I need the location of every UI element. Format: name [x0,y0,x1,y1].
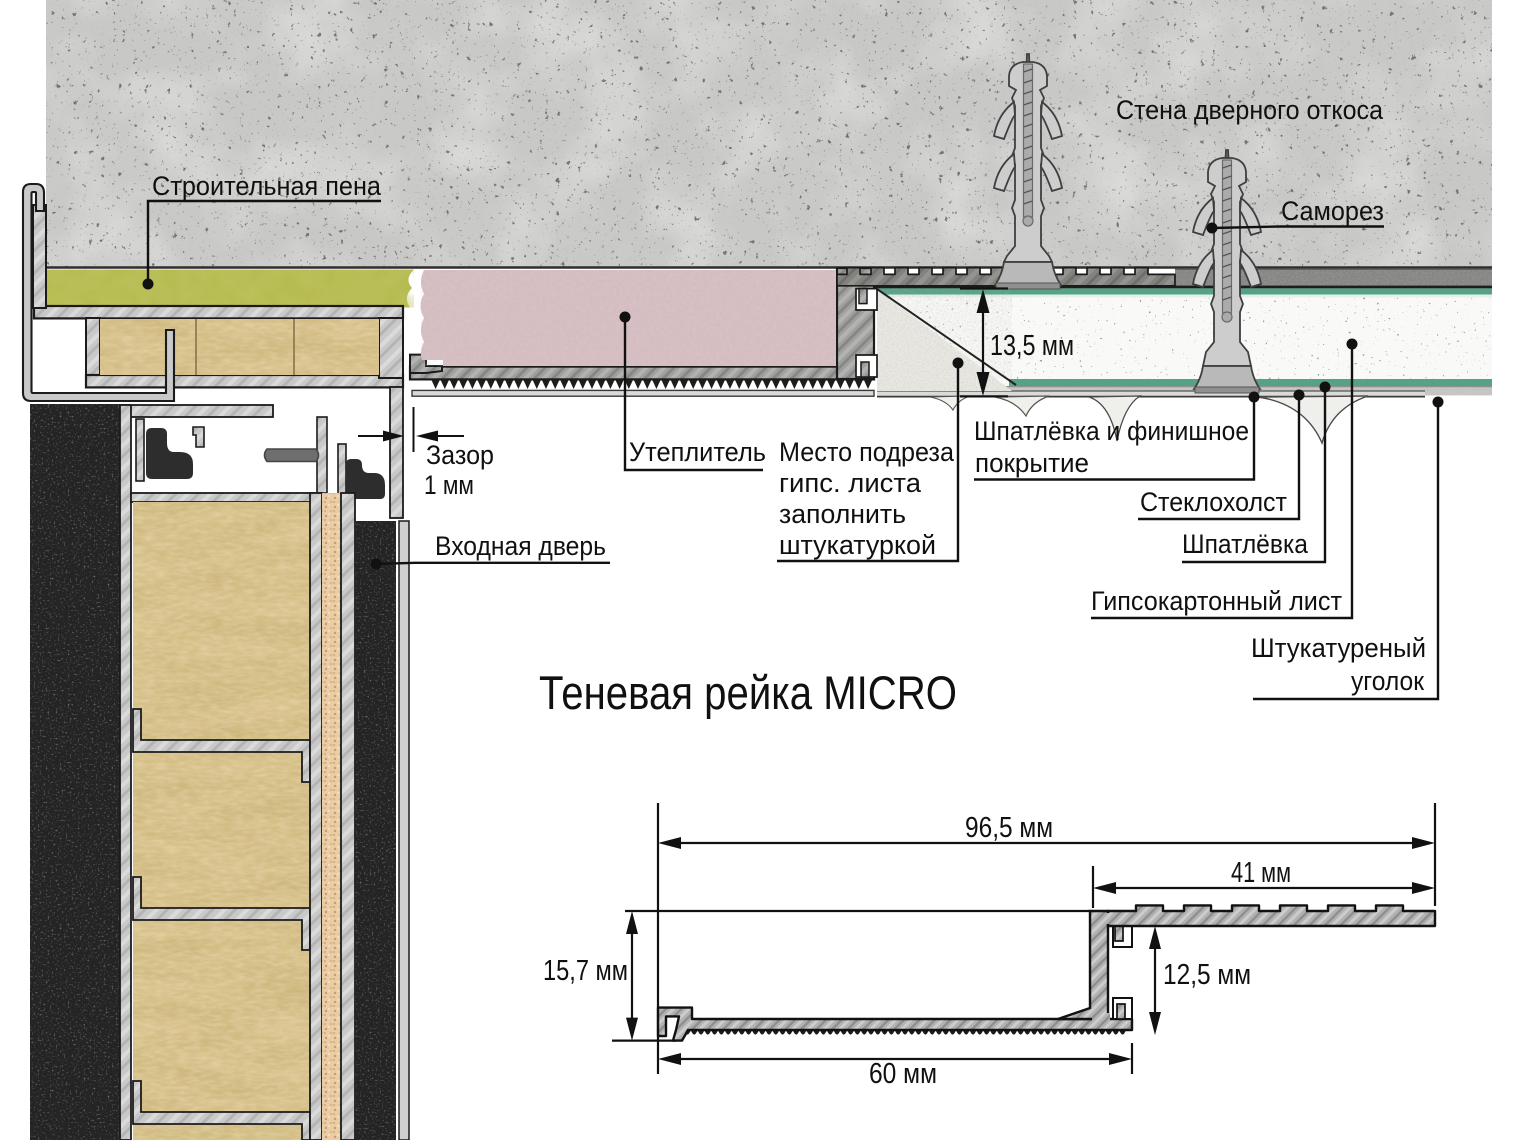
svg-text:Строительная пена: Строительная пена [152,171,382,201]
svg-text:Шпатлёвка: Шпатлёвка [1182,529,1309,559]
svg-text:Утеплитель: Утеплитель [629,437,766,467]
svg-text:1 мм: 1 мм [424,470,474,500]
svg-text:Стена дверного откоса: Стена дверного откоса [1116,95,1384,125]
svg-text:Зазор: Зазор [426,440,494,470]
svg-text:Место подреза: Место подреза [779,437,955,467]
svg-text:13,5 мм: 13,5 мм [990,330,1074,362]
svg-text:41 мм: 41 мм [1231,857,1291,889]
svg-text:Гипсокартонный лист: Гипсокартонный лист [1091,586,1342,616]
svg-text:Стеклохолст: Стеклохолст [1140,487,1287,517]
svg-text:покрытие: покрытие [975,448,1089,478]
svg-text:15,7 мм: 15,7 мм [543,955,628,987]
svg-text:Шпатлёвка и финишное: Шпатлёвка и финишное [974,416,1249,446]
svg-text:уголок: уголок [1351,666,1424,696]
svg-text:60 мм: 60 мм [869,1058,937,1090]
svg-text:12,5 мм: 12,5 мм [1163,959,1251,991]
svg-text:96,5 мм: 96,5 мм [965,812,1053,844]
svg-text:штукатуркой: штукатуркой [779,530,936,560]
svg-text:гипс. листа: гипс. листа [779,468,922,498]
svg-text:Штукатуреный: Штукатуреный [1251,633,1426,663]
svg-text:Теневая рейка MICRO: Теневая рейка MICRO [539,666,957,719]
svg-text:Саморез: Саморез [1281,196,1384,226]
svg-text:заполнить: заполнить [779,499,906,529]
svg-text:Входная дверь: Входная дверь [435,531,606,561]
